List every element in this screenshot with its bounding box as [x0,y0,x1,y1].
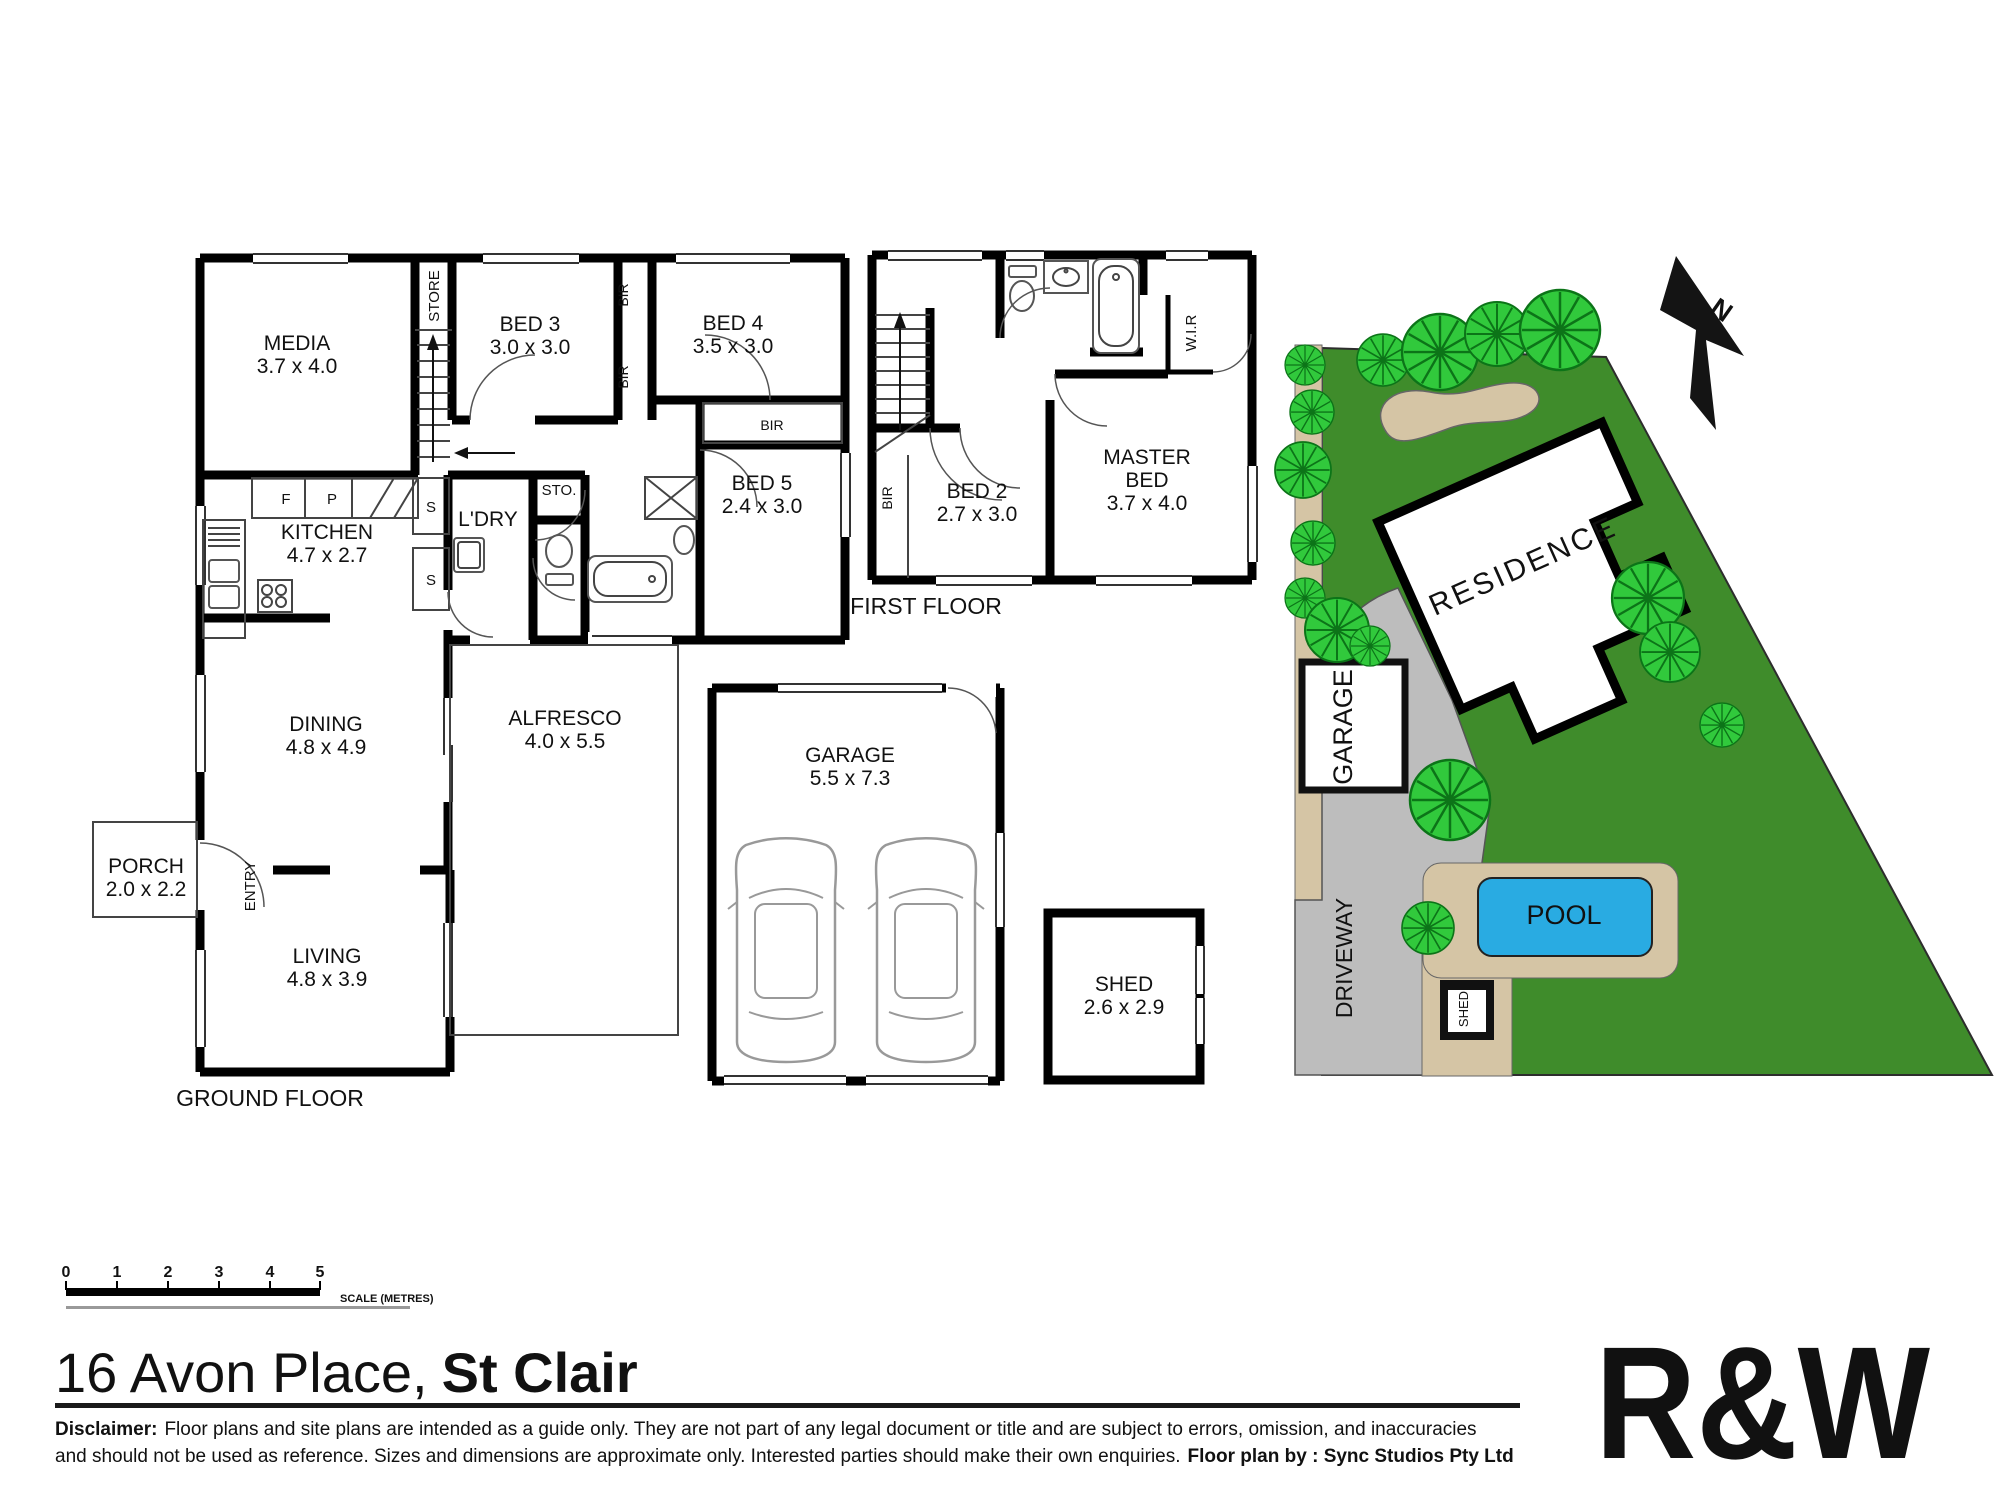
scale-bar: 0 1 2 3 4 5 SCALE (METRES) [62,1264,434,1309]
first-floor-plan: BED 2 2.7 x 3.0 MASTER BED 3.7 x 4.0 W.I… [850,247,1261,619]
scale-tick-4: 4 [266,1264,275,1281]
svg-text:4.0 x 5.5: 4.0 x 5.5 [525,730,606,753]
room-dining: DINING [289,713,363,736]
room-bed3: BED 3 [500,313,561,336]
label-ldry: L'DRY [458,508,518,531]
site-driveway-label: DRIVEWAY [1331,898,1357,1018]
label-fridge: F [281,491,290,508]
label-sto: STO. [542,482,577,499]
room-media: MEDIA [264,332,331,355]
scale-label: SCALE (METRES) [340,1293,434,1305]
title-divider [55,1403,1520,1408]
site-plan: N RESIDENCE GARAGE DRIVEWAY POOL SHED [1275,256,1992,1076]
label-wir: W.I.R [1183,315,1200,352]
room-living: LIVING [293,945,362,968]
bathroom-first [1009,259,1139,353]
stairs-up-arrow-icon [427,334,439,350]
door-arcs-first [930,288,1251,500]
kitchen-sink-icon [209,560,239,582]
svg-text:2.7 x 3.0: 2.7 x 3.0 [937,503,1018,526]
garage-plan: GARAGE 5.5 x 7.3 [712,680,1009,1084]
floorplan-page: N RESIDENCE GARAGE DRIVEWAY POOL SHED [0,0,2000,1500]
laundry-arrow [454,447,515,459]
svg-text:4.8 x 4.9: 4.8 x 4.9 [286,736,367,759]
site-pool-label: POOL [1526,900,1601,930]
room-master: MASTER [1103,446,1191,469]
room-alfresco: ALFRESCO [508,707,621,730]
svg-text:4.7 x 2.7: 4.7 x 2.7 [287,544,368,567]
svg-text:4.8 x 3.9: 4.8 x 3.9 [287,968,368,991]
label-bir-4: BIR [879,486,895,509]
north-arrow: N [1660,256,1744,430]
site-garage-label: GARAGE [1328,669,1358,785]
room-bed2: BED 2 [947,480,1008,503]
label-shelf-2: S [426,572,436,589]
svg-text:3.5 x 3.0: 3.5 x 3.0 [693,335,774,358]
windows-first [888,247,1261,589]
label-bir-3: BIR [760,417,783,433]
room-shed: SHED [1095,973,1153,996]
ground-floor-label: GROUND FLOOR [176,1085,364,1111]
footer: 16 Avon Place,St Clair Disclaimer:Floor … [55,1313,1930,1492]
scale-tick-3: 3 [215,1264,224,1281]
room-porch: PORCH [108,855,184,878]
svg-text:2.0 x 2.2: 2.0 x 2.2 [106,878,187,901]
room-bed4: BED 4 [703,312,764,335]
label-bir-1: BIR [615,283,631,306]
disclaimer-line2: and should not be used as reference. Siz… [55,1446,1514,1467]
toilet-icon [546,535,572,567]
scale-tick-2: 2 [164,1264,173,1281]
scale-tick-1: 1 [113,1264,122,1281]
svg-text:3.7 x 4.0: 3.7 x 4.0 [1107,492,1188,515]
room-garage: GARAGE [805,744,895,767]
svg-text:2.4 x 3.0: 2.4 x 3.0 [722,495,803,518]
vanity-icon [1044,261,1088,293]
stairs-ground [415,330,452,462]
svg-text:3.0 x 3.0: 3.0 x 3.0 [490,336,571,359]
scale-tick-0: 0 [62,1264,71,1281]
label-shelf-1: S [426,499,436,516]
svg-text:5.5 x 7.3: 5.5 x 7.3 [810,767,891,790]
page-title: 16 Avon Place,St Clair [55,1341,638,1404]
svg-text:BED: BED [1125,469,1168,492]
first-floor-label: FIRST FLOOR [850,593,1002,619]
room-kitchen: KITCHEN [281,521,373,544]
label-store: STORE [426,270,443,321]
rw-logo: R&W [1595,1313,1930,1492]
basin-icon [674,526,694,554]
shed-plan: SHED 2.6 x 2.9 [1048,913,1209,1080]
label-pantry: P [327,491,337,508]
label-bir-2: BIR [615,365,631,388]
disclaimer-line1: Disclaimer:Floor plans and site plans ar… [55,1419,1477,1440]
svg-text:3.7 x 4.0: 3.7 x 4.0 [257,355,338,378]
svg-text:2.6 x 2.9: 2.6 x 2.9 [1084,996,1165,1019]
alfresco-outline [450,645,678,1035]
floorplan-image: N RESIDENCE GARAGE DRIVEWAY POOL SHED [0,0,2000,1500]
label-entry: ENTRY [242,861,259,912]
cooktop-icon [258,580,292,612]
scale-tick-5: 5 [316,1264,325,1281]
room-bed5: BED 5 [732,472,793,495]
site-shed-label: SHED [1456,991,1471,1027]
